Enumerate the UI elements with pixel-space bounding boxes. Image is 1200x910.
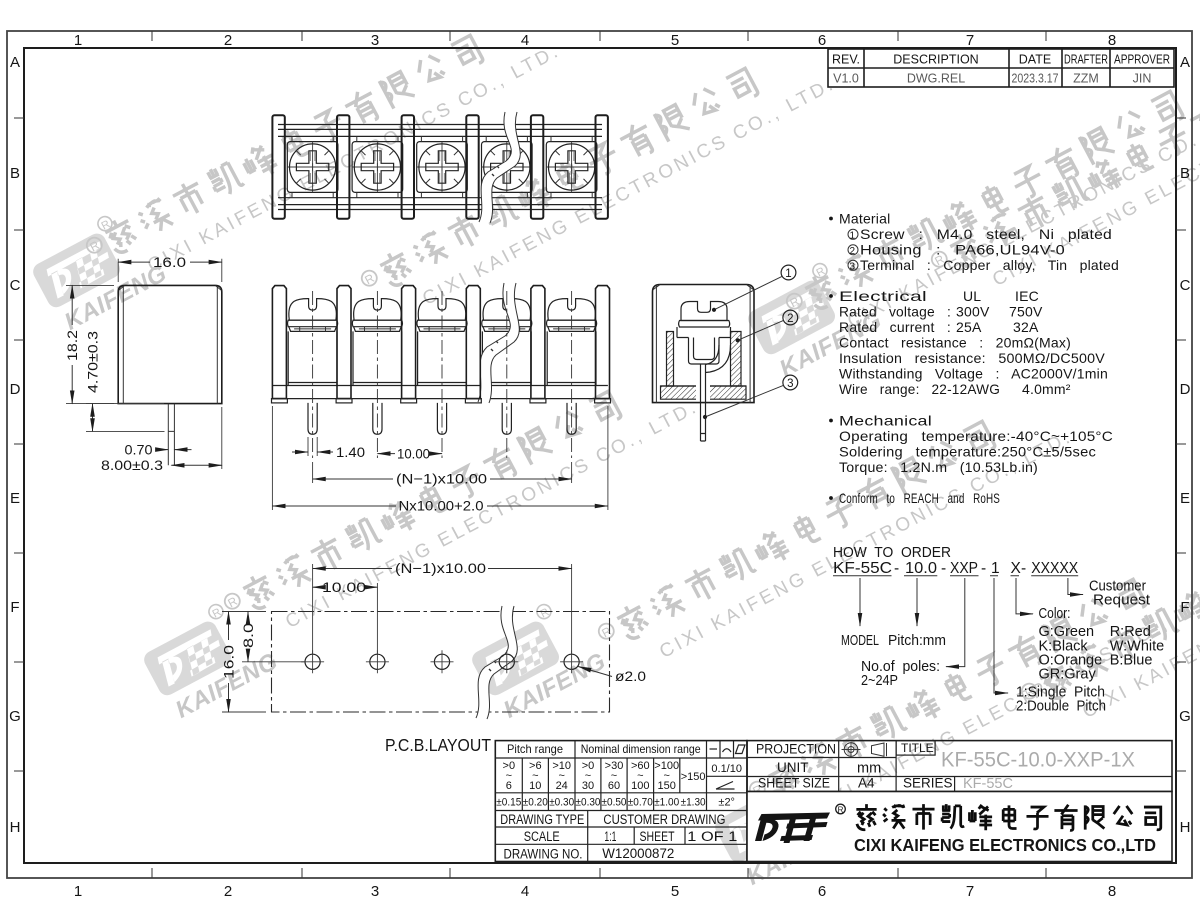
svg-text:(N−1)x10.00: (N−1)x10.00: [395, 560, 486, 576]
svg-text:±0.30: ±0.30: [576, 797, 601, 809]
svg-text:2:Double Pitch: 2:Double Pitch: [1016, 699, 1106, 715]
svg-text:G: G: [9, 708, 21, 725]
svg-text:A: A: [1180, 54, 1190, 71]
svg-text:3: 3: [371, 32, 379, 49]
svg-text:UL: UL: [963, 288, 981, 304]
svg-text:SHEET: SHEET: [640, 829, 675, 844]
svg-text:F: F: [10, 599, 19, 616]
svg-text:X: X: [1011, 560, 1022, 577]
svg-text:A4: A4: [858, 776, 875, 791]
svg-text:8.0: 8.0: [240, 623, 256, 648]
svg-text:(N−1)x10.00: (N−1)x10.00: [396, 471, 487, 487]
svg-text:5: 5: [671, 883, 679, 900]
svg-text:SERIES: SERIES: [903, 776, 953, 791]
svg-text:D: D: [10, 381, 21, 398]
svg-text:mm: mm: [857, 761, 881, 777]
svg-text:>150: >150: [681, 771, 706, 783]
svg-text:10: 10: [529, 780, 541, 792]
svg-text:Operating temperature:-40°C~: Operating temperature:-40°C~+105°C: [839, 428, 1113, 444]
svg-text:±0.50: ±0.50: [602, 797, 627, 809]
svg-text:KF-55C: KF-55C: [963, 776, 1013, 792]
svg-text:B:Blue: B:Blue: [1110, 653, 1153, 669]
svg-text:30: 30: [582, 780, 594, 792]
svg-text:5: 5: [671, 32, 679, 49]
svg-text:10.00: 10.00: [322, 579, 366, 595]
svg-text:KF-55C-10.0-XXP-1X: KF-55C-10.0-XXP-1X: [941, 748, 1135, 772]
svg-text:Material: Material: [839, 211, 890, 227]
svg-text:SHEET SIZE: SHEET SIZE: [758, 776, 830, 791]
svg-text:-: -: [894, 560, 899, 577]
svg-text:Insulation resistance: 500: Insulation resistance: 500MΩ/DC500V: [839, 350, 1105, 366]
svg-text:E: E: [1180, 490, 1190, 507]
svg-text:SCALE: SCALE: [524, 829, 560, 844]
svg-text:3: 3: [850, 261, 856, 272]
svg-text:D: D: [1180, 381, 1191, 398]
svg-text:4.70±0.3: 4.70±0.3: [85, 331, 101, 393]
svg-text:60: 60: [608, 780, 620, 792]
svg-text:Electrical: Electrical: [839, 288, 927, 304]
svg-text:V1.0: V1.0: [833, 72, 859, 86]
svg-text:2: 2: [850, 246, 856, 257]
svg-text:1 OF 1: 1 OF 1: [687, 829, 737, 844]
svg-text:10.0: 10.0: [905, 560, 937, 577]
svg-text:150: 150: [658, 780, 676, 792]
svg-text:P.C.B.LAYOUT: P.C.B.LAYOUT: [385, 735, 491, 755]
svg-text:Color:: Color:: [1039, 606, 1071, 622]
svg-text:Soldering temperature:250°C±: Soldering temperature:250°C±5/5sec: [839, 444, 1096, 460]
svg-text:Conform to REACH and R: Conform to REACH and RoHS: [839, 490, 1000, 506]
svg-text:Withstanding Voltage : A: Withstanding Voltage : AC2000V/1min: [839, 366, 1108, 382]
svg-text:DRAWING TYPE: DRAWING TYPE: [500, 812, 584, 827]
svg-text:XXP: XXP: [950, 560, 978, 577]
svg-text:2: 2: [224, 32, 232, 49]
svg-text:Nx10.00+2.0: Nx10.00+2.0: [399, 498, 484, 514]
svg-text:DESCRIPTION: DESCRIPTION: [893, 53, 978, 67]
svg-text:16.0: 16.0: [221, 645, 237, 679]
svg-text:Pitch range: Pitch range: [507, 742, 563, 756]
svg-text:Rated voltage :: Rated voltage :: [839, 304, 951, 320]
svg-text:Housing : PA66,UL94V-0: Housing : PA66,UL94V-0: [860, 242, 1065, 258]
svg-text:4.0mm²: 4.0mm²: [1022, 381, 1071, 397]
svg-text:Terminal : Copper alloy,: Terminal : Copper alloy, Tin plated: [860, 257, 1119, 273]
svg-text:KF-55C: KF-55C: [833, 560, 892, 577]
svg-text:-: -: [941, 560, 946, 577]
svg-text:100: 100: [631, 780, 649, 792]
svg-text:±0.15: ±0.15: [496, 797, 521, 809]
svg-text:6: 6: [506, 780, 512, 792]
svg-text:ø2.0: ø2.0: [615, 668, 646, 684]
svg-text:1: 1: [850, 230, 856, 241]
svg-text:1: 1: [74, 883, 82, 900]
svg-text:H: H: [1180, 819, 1191, 836]
svg-text:IEC: IEC: [1015, 288, 1039, 304]
svg-text:±1.30: ±1.30: [681, 797, 706, 809]
svg-text:Mechanical: Mechanical: [839, 413, 932, 429]
svg-text:2: 2: [787, 313, 793, 325]
svg-text:-: -: [981, 560, 986, 577]
svg-text:6: 6: [818, 883, 826, 900]
svg-text:DWG.REL: DWG.REL: [907, 72, 965, 86]
svg-text:16.0: 16.0: [153, 254, 186, 270]
svg-text:4: 4: [521, 883, 529, 900]
svg-text:W12000872: W12000872: [602, 846, 674, 861]
svg-text:ZZM: ZZM: [1073, 72, 1099, 86]
svg-text:Screw : M4.0 steel, Ni: Screw : M4.0 steel, Ni plated: [860, 226, 1112, 242]
svg-text:Contact resistance : 20m: Contact resistance : 20mΩ(Max): [839, 335, 1071, 351]
svg-text:UNIT: UNIT: [777, 760, 809, 775]
svg-text:DRAFTER: DRAFTER: [1064, 53, 1108, 67]
svg-text:C: C: [10, 277, 21, 294]
svg-text:1.40: 1.40: [336, 444, 365, 460]
svg-text:R: R: [838, 806, 844, 815]
svg-text:±0.30: ±0.30: [549, 797, 574, 809]
svg-text:Torque: 1.2N.m (10.53Lb.in: Torque: 1.2N.m (10.53Lb.in): [839, 459, 1038, 475]
svg-text:8: 8: [1108, 883, 1116, 900]
svg-text:1: 1: [74, 32, 82, 49]
svg-text:E: E: [10, 490, 20, 507]
svg-text:HOW TO ORDER: HOW TO ORDER: [833, 545, 951, 561]
svg-text:4: 4: [521, 32, 529, 49]
svg-text:2: 2: [224, 883, 232, 900]
svg-text:18.2: 18.2: [64, 330, 80, 361]
svg-text:3: 3: [371, 883, 379, 900]
svg-text:-: -: [1021, 560, 1026, 577]
svg-text:300V: 300V: [956, 304, 990, 320]
svg-text:±2°: ±2°: [718, 797, 735, 809]
svg-text:B: B: [10, 165, 20, 182]
svg-text:REV.: REV.: [832, 53, 860, 67]
svg-text:3: 3: [787, 378, 793, 390]
svg-text:GR:Gray: GR:Gray: [1039, 666, 1097, 682]
svg-text:DRAWING NO.: DRAWING NO.: [504, 847, 583, 862]
svg-text:A: A: [10, 54, 20, 71]
svg-text:8: 8: [1108, 32, 1116, 49]
svg-text:H: H: [10, 819, 21, 836]
svg-text:Rated current :: Rated current :: [839, 319, 951, 335]
svg-text:10.00: 10.00: [397, 445, 430, 461]
svg-text:JIN: JIN: [1133, 72, 1152, 86]
svg-text:Pitch:mm: Pitch:mm: [888, 633, 946, 649]
svg-text:Wire range: 22-12AWG: Wire range: 22-12AWG: [839, 381, 1000, 397]
svg-text:APPROVER: APPROVER: [1114, 53, 1170, 67]
svg-text:7: 7: [966, 883, 974, 900]
svg-text:Request: Request: [1093, 593, 1150, 609]
svg-text:2023.3.17: 2023.3.17: [1012, 72, 1059, 86]
svg-text:C: C: [1180, 277, 1191, 294]
svg-text:Nominal dimension range: Nominal dimension range: [581, 742, 701, 756]
svg-text:DATE: DATE: [1019, 53, 1051, 67]
svg-text:XXXXX: XXXXX: [1031, 560, 1079, 577]
svg-text:CUSTOMER DRAWING: CUSTOMER DRAWING: [603, 812, 725, 827]
svg-text:±0.20: ±0.20: [523, 797, 548, 809]
svg-text:±1.00: ±1.00: [654, 797, 679, 809]
svg-text:750V: 750V: [1009, 304, 1043, 320]
svg-text:7: 7: [966, 32, 974, 49]
svg-text:24: 24: [556, 780, 568, 792]
svg-text:F: F: [1180, 599, 1189, 616]
svg-text:±0.70: ±0.70: [628, 797, 653, 809]
svg-text:0.1/10: 0.1/10: [711, 763, 742, 775]
svg-text:1: 1: [785, 268, 791, 280]
svg-text:25A: 25A: [956, 319, 982, 335]
svg-text:MODEL: MODEL: [841, 633, 879, 649]
svg-text:1: 1: [991, 560, 1000, 577]
svg-text:CIXI KAIFENG ELECTRONICS CO.,L: CIXI KAIFENG ELECTRONICS CO.,LTD: [854, 835, 1156, 855]
svg-text:6: 6: [818, 32, 826, 49]
svg-text:0.70: 0.70: [125, 442, 153, 458]
svg-text:B: B: [1180, 165, 1190, 182]
svg-text:TITLE: TITLE: [901, 741, 934, 755]
svg-text:2~24P: 2~24P: [861, 673, 898, 689]
svg-text:G: G: [1179, 708, 1191, 725]
svg-text:PROJECTION: PROJECTION: [756, 742, 836, 757]
svg-text:1:1: 1:1: [604, 829, 616, 844]
svg-text:8.00±0.3: 8.00±0.3: [101, 457, 163, 473]
svg-text:32A: 32A: [1013, 319, 1039, 335]
